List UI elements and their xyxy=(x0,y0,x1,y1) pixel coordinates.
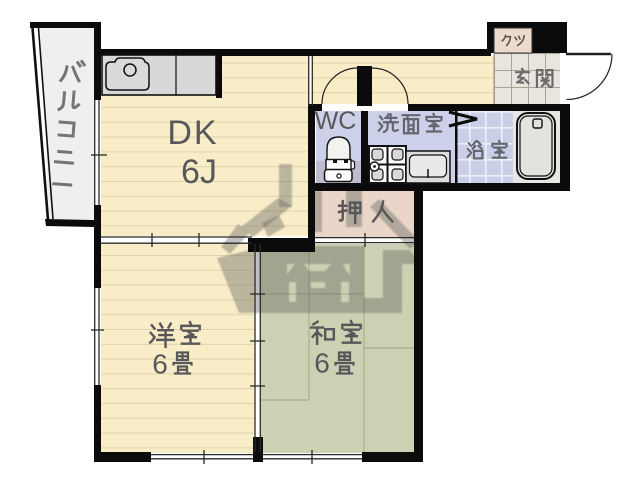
svg-text:6: 6 xyxy=(314,348,330,379)
svg-text:DK: DK xyxy=(167,114,218,152)
svg-text:WC: WC xyxy=(315,107,357,135)
svg-text:6: 6 xyxy=(152,349,168,380)
svg-text:6J: 6J xyxy=(181,153,217,191)
